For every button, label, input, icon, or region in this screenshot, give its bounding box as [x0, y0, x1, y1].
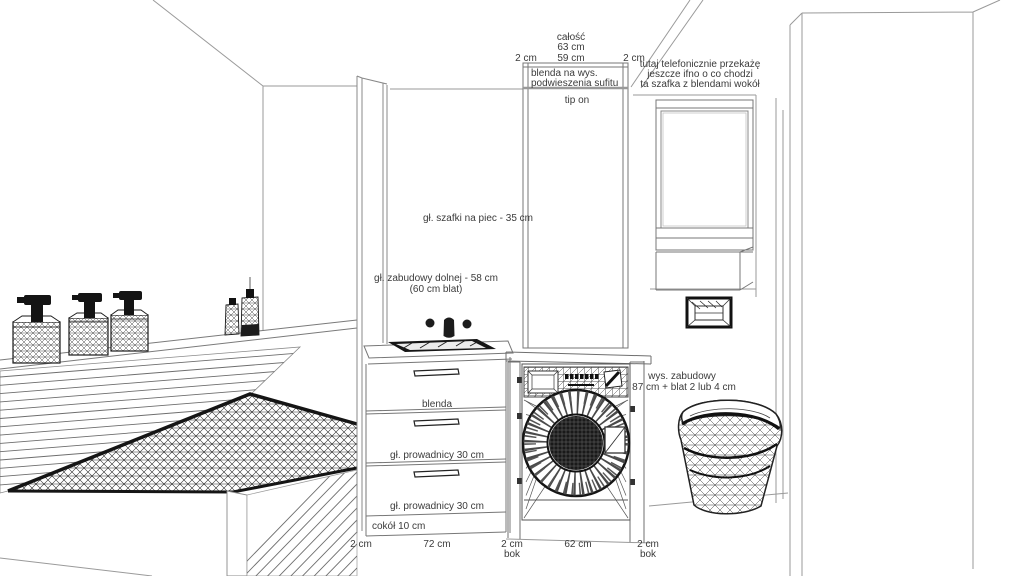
- detergent-drawer: [528, 371, 558, 393]
- faucet: [426, 318, 472, 338]
- faucet-handle-right: [463, 320, 472, 329]
- label-blenda-line2: podwieszenia sufitu: [531, 78, 618, 89]
- label-note-line3: ta szafka z blendami wokół: [640, 79, 760, 90]
- label-top-side-left: 2 cm: [515, 53, 537, 64]
- label-oven-depth: gł. szafki na piec - 35 cm: [423, 213, 533, 224]
- drawer-handle-1: [414, 369, 459, 376]
- washer-drum: [549, 416, 603, 470]
- washer-door: [523, 390, 629, 496]
- label-base-depth-line2: (60 cm blat): [410, 284, 463, 295]
- label-dim-right-bottom: bok: [640, 549, 657, 560]
- soap-dispenser-1: [13, 295, 60, 363]
- drawer-handle-3: [414, 470, 459, 477]
- mirror-cabinet-base: [656, 247, 753, 290]
- perfume-bottles: [225, 277, 259, 336]
- label-dim-left: 2 cm: [350, 539, 372, 550]
- washing-machine: [522, 364, 630, 520]
- design-render-canvas: całość 63 cm 2 cm 59 cm 2 cm blenda na w…: [0, 0, 1024, 576]
- ceiling-corner-line: [153, 0, 263, 86]
- flush-plate: [687, 298, 731, 327]
- mirror-cabinet: [656, 100, 753, 290]
- washer-dial: [604, 370, 622, 388]
- label-tip-on: tip on: [565, 95, 589, 106]
- toilet: [679, 400, 782, 514]
- tub-corner-post: [227, 491, 247, 576]
- floor-line-left: [0, 558, 152, 576]
- soap-dispensers: [13, 277, 259, 363]
- label-dim-washer: 62 cm: [564, 539, 591, 550]
- design-render-viewport: całość 63 cm 2 cm 59 cm 2 cm blenda na w…: [0, 0, 1024, 576]
- label-top-width: 59 cm: [557, 53, 584, 64]
- plinth-top-line: [366, 512, 506, 516]
- faucet-spout: [444, 318, 455, 338]
- faucet-handle-left: [426, 319, 435, 328]
- label-total-value: 63 cm: [557, 42, 584, 53]
- soap-dispenser-2: [69, 293, 108, 355]
- label-drawer1: blenda: [422, 399, 452, 410]
- label-build-height-line2: 87 cm + blat 2 lub 4 cm: [632, 382, 736, 393]
- label-plinth: cokół 10 cm: [372, 521, 425, 532]
- right-wall-panel: [790, 0, 1000, 576]
- label-drawer2: gł. prowadnicy 30 cm: [390, 450, 484, 461]
- label-dim-vanity: 72 cm: [423, 539, 450, 550]
- label-base-depth-line1: gł. zabudowy dolnej - 58 cm: [374, 273, 498, 284]
- niche-top-slab: [506, 352, 651, 364]
- wall-pillar: [357, 76, 387, 533]
- label-dim-mid-bottom: bok: [504, 549, 521, 560]
- label-drawer3: gł. prowadnicy 30 cm: [390, 501, 484, 512]
- soap-dispenser-3: [111, 291, 148, 351]
- cabinet-bottom-line: [366, 532, 506, 536]
- label-build-height-line1: wys. zabudowy: [647, 371, 716, 382]
- drawer-handle-2: [414, 419, 459, 426]
- vanity-counter: [364, 318, 513, 365]
